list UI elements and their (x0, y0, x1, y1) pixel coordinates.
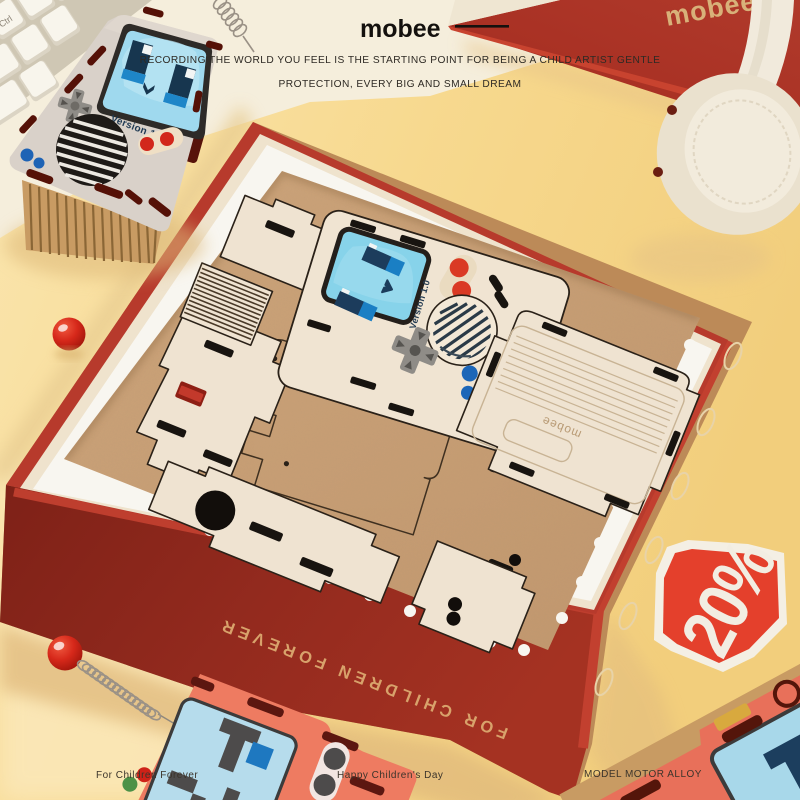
svg-text:mobee: mobee (360, 15, 441, 43)
svg-text:MODEL MOTOR ALLOY: MODEL MOTOR ALLOY (584, 769, 702, 780)
svg-text:RECORDING THE WORLD YOU FEEL I: RECORDING THE WORLD YOU FEEL IS THE STAR… (140, 55, 661, 66)
svg-text:Happy Children's Day: Happy Children's Day (337, 770, 443, 781)
svg-text:PROTECTION, EVERY BIG AND SMAL: PROTECTION, EVERY BIG AND SMALL DREAM (279, 79, 522, 90)
svg-text:For Children Forever: For Children Forever (96, 770, 198, 781)
